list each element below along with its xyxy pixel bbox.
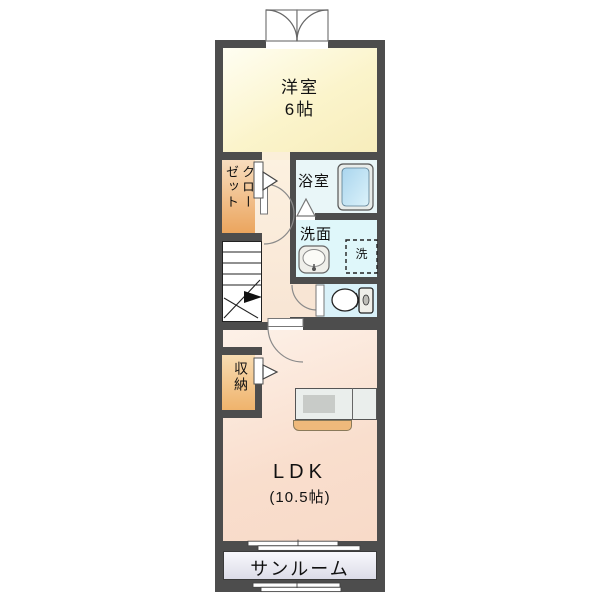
wall-segment [215, 233, 262, 241]
kitchen-sink-icon [303, 395, 335, 413]
western-room-name: 洋室 [223, 77, 377, 99]
ldk-size-label: (10.5帖) [223, 486, 377, 507]
bath-label: 浴室 [298, 170, 330, 191]
kitchen-base-cabinet [293, 420, 352, 431]
storage-label: 収納 [231, 361, 251, 393]
western-door-opening [262, 152, 290, 160]
ldk-door-opening [268, 322, 303, 330]
bath-door-opening [296, 213, 315, 220]
room-toilet [317, 284, 377, 317]
sunroom-label: サンルーム [223, 555, 377, 581]
ldk-name-label: LDK [223, 461, 377, 484]
wall-segment [255, 382, 262, 410]
western-room-label: 洋室 6帖 [223, 77, 377, 121]
western-room-size: 6帖 [223, 99, 377, 121]
wall-segment [215, 347, 262, 355]
washer-space-label: 洗 [346, 245, 377, 262]
staircase-box [222, 241, 262, 322]
room-hall-toilet-front [290, 284, 317, 317]
wall-segment [215, 410, 262, 418]
kitchen-counter-divider [352, 388, 353, 420]
floor-plan-page: { "rooms": { "western_room": { "name_lin… [0, 0, 600, 600]
washroom-label: 洗面 [300, 223, 332, 244]
closet-label-col2: ゼット [222, 165, 241, 210]
